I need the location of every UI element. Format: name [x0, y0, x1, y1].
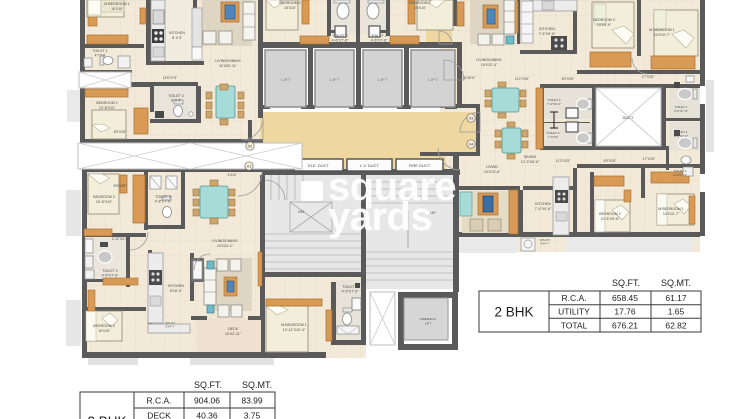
svg-text:2 BHK: 2 BHK	[494, 305, 533, 320]
svg-text:BEDROOM 3: BEDROOM 3	[93, 324, 115, 328]
svg-text:10'X13'-6": 10'X13'-6"	[484, 170, 501, 174]
svg-text:10'X10'-7": 10'X10'-7"	[663, 212, 680, 216]
svg-text:M.BEDROOM 1: M.BEDROOM 1	[104, 2, 130, 6]
svg-text:62.82: 62.82	[665, 320, 687, 330]
svg-text:10'X10': 10'X10'	[414, 6, 426, 10]
svg-text:BEDROOM 3: BEDROOM 3	[93, 195, 115, 199]
svg-text:676.21: 676.21	[612, 320, 638, 330]
svg-text:4'-6"X8'-6": 4'-6"X8'-6"	[461, 76, 476, 80]
svg-text:3.75: 3.75	[244, 411, 261, 419]
svg-text:ELE. DUCT: ELE. DUCT	[308, 163, 329, 168]
svg-text:11'3"X3'5": 11'3"X3'5"	[556, 159, 570, 163]
svg-text:10'X24'-1": 10'X24'-1"	[217, 244, 234, 248]
svg-text:10'X10': 10'X10'	[98, 329, 110, 333]
svg-text:17.76: 17.76	[614, 307, 636, 317]
svg-text:4'-6"X7'-6": 4'-6"X7'-6"	[673, 173, 687, 177]
svg-text:LIVING/DINING: LIVING/DINING	[476, 58, 502, 62]
svg-text:DECK: DECK	[228, 327, 239, 331]
svg-text:658.45: 658.45	[612, 293, 638, 303]
svg-text:BEDROOM 2: BEDROOM 2	[599, 212, 621, 216]
svg-text:10'-8"X10': 10'-8"X10'	[99, 106, 116, 110]
svg-text:TOILET 2: TOILET 2	[332, 34, 347, 38]
svg-text:10'X9'-9": 10'X9'-9"	[597, 23, 612, 27]
svg-text:8'X8'-6": 8'X8'-6"	[170, 289, 183, 293]
svg-text:3'X4'-7": 3'X4'-7"	[540, 242, 550, 246]
svg-text:8'5"X3'6": 8'5"X3'6"	[114, 130, 127, 134]
svg-text:DINING: DINING	[524, 155, 537, 159]
svg-text:4'-6"X7'-6": 4'-6"X7'-6"	[371, 39, 388, 43]
svg-text:8'9"X3'5": 8'9"X3'5"	[562, 77, 575, 81]
svg-text:904.06: 904.06	[194, 396, 220, 406]
svg-text:LIFT: LIFT	[428, 78, 438, 82]
svg-text:8'5"X3'6": 8'5"X3'6"	[114, 184, 127, 188]
svg-text:TOILET 2: TOILET 2	[102, 269, 117, 273]
svg-text:40.36: 40.36	[196, 411, 218, 419]
svg-text:TOILET 3: TOILET 3	[155, 195, 170, 199]
svg-text:4'-8"X7'-6": 4'-8"X7'-6"	[155, 200, 172, 204]
svg-text:LIFT: LIFT	[281, 78, 291, 82]
svg-text:7'-6"X9'-6": 7'-6"X9'-6"	[539, 32, 556, 36]
svg-text:10'X2'-11": 10'X2'-11"	[225, 332, 242, 336]
svg-text:4'X14': 4'X14'	[228, 173, 237, 177]
svg-text:TOILET 1: TOILET 1	[92, 49, 107, 53]
svg-text:KITCHEN: KITCHEN	[168, 284, 184, 288]
svg-text:01: 01	[247, 164, 252, 169]
svg-text:KITCHEN: KITCHEN	[535, 202, 551, 206]
svg-text:UTILITY: UTILITY	[558, 307, 590, 317]
svg-text:SQ.FT.: SQ.FT.	[194, 380, 222, 390]
svg-text:03: 03	[469, 116, 474, 121]
svg-text:8' X 4': 8' X 4'	[171, 99, 181, 103]
svg-text:10'X10'-7": 10'X10'-7"	[654, 33, 671, 37]
svg-text:3'X4'-7": 3'X4'-7"	[165, 325, 175, 329]
svg-text:M.BEDROOM 1: M.BEDROOM 1	[649, 28, 675, 32]
svg-text:yards: yards	[328, 195, 432, 239]
svg-text:SQ.MT.: SQ.MT.	[242, 380, 272, 390]
svg-text:LIFT: LIFT	[330, 78, 340, 82]
svg-text:TOILET 2: TOILET 2	[371, 34, 386, 38]
svg-text:R.C.A.: R.C.A.	[561, 293, 586, 303]
svg-text:10'X20'-11": 10'X20'-11"	[219, 64, 238, 68]
svg-text:12'5"X7'6": 12'5"X7'6"	[163, 76, 177, 80]
svg-text:BEDROOM 2: BEDROOM 2	[96, 101, 118, 105]
svg-text:7'-6"X4': 7'-6"X4'	[548, 135, 559, 139]
svg-text:BEDROOM 2: BEDROOM 2	[279, 1, 301, 5]
svg-text:BEDROOM 2: BEDROOM 2	[409, 1, 431, 5]
svg-text:12'-3"X8'-6": 12'-3"X8'-6"	[521, 160, 540, 164]
svg-text:M.BEDROOM 1: M.BEDROOM 1	[658, 207, 684, 211]
svg-text:04: 04	[469, 142, 474, 147]
svg-text:SQ.FT.: SQ.FT.	[612, 278, 640, 288]
svg-text:LIFT: LIFT	[378, 78, 388, 82]
svg-text:10'-11"X10'-4": 10'-11"X10'-4"	[283, 328, 306, 332]
svg-text:7'-4"X9'-6": 7'-4"X9'-6"	[535, 207, 552, 211]
svg-text:4'-6"X7'-6": 4'-6"X7'-6"	[674, 109, 688, 113]
svg-text:8'9"X3'5": 8'9"X3'5"	[604, 159, 617, 163]
svg-text:SQ.MT.: SQ.MT.	[661, 278, 691, 288]
svg-text:TOILET 1: TOILET 1	[342, 285, 357, 289]
svg-text:DN: DN	[298, 209, 304, 214]
svg-text:1.65: 1.65	[668, 307, 685, 317]
svg-text:2'-11"X4'-4": 2'-11"X4'-4"	[112, 237, 128, 241]
svg-text:4'-6"X7'-6": 4'-6"X7'-6"	[674, 134, 688, 138]
svg-text:LIVING/DINING: LIVING/DINING	[212, 239, 238, 243]
svg-text:8' X 9': 8' X 9'	[172, 36, 182, 40]
svg-text:10'X22'-4": 10'X22'-4"	[481, 63, 498, 67]
svg-text:7'-4"X4'-0": 7'-4"X4'-0"	[547, 102, 561, 106]
svg-text:10'-8"X9'-6": 10'-8"X9'-6"	[601, 217, 620, 221]
svg-text:TOILET 3: TOILET 3	[168, 94, 183, 98]
svg-text:11'2"X3'5": 11'2"X3'5"	[515, 77, 529, 81]
svg-text:LIVING: LIVING	[486, 165, 498, 169]
svg-text:R.C.A.: R.C.A.	[146, 396, 171, 406]
svg-text:LIVING/DINING: LIVING/DINING	[215, 59, 241, 63]
svg-text:10'-8"X10': 10'-8"X10'	[96, 200, 113, 204]
svg-text:TOTAL: TOTAL	[561, 320, 588, 330]
svg-text:4'-6"X7'-6": 4'-6"X7'-6"	[332, 39, 349, 43]
svg-text:KITCHEN: KITCHEN	[539, 27, 555, 31]
svg-text:1'7"X2'6": 1'7"X2'6"	[642, 75, 655, 79]
svg-text:DUCT: DUCT	[622, 115, 634, 120]
svg-text:4'7"X4': 4'7"X4'	[94, 54, 105, 58]
svg-text:10'X10': 10'X10'	[111, 7, 123, 11]
svg-text:2 BHK: 2 BHK	[87, 414, 126, 419]
svg-text:10'X10': 10'X10'	[284, 6, 296, 10]
svg-text:4'-9"X7'-6": 4'-9"X7'-6"	[342, 290, 359, 294]
svg-text:BEDROOM 3: BEDROOM 3	[593, 18, 615, 22]
svg-text:KITCHEN: KITCHEN	[169, 31, 185, 35]
svg-text:FIREMAN'S: FIREMAN'S	[420, 317, 436, 321]
svg-text:4'-6"X7'-6": 4'-6"X7'-6"	[102, 274, 119, 278]
svg-text:83.99: 83.99	[241, 396, 263, 406]
svg-text:1'7"X2'6": 1'7"X2'6"	[643, 157, 656, 161]
svg-text:DECK: DECK	[147, 411, 171, 419]
svg-text:LIFT: LIFT	[425, 322, 431, 326]
svg-text:02: 02	[248, 144, 253, 149]
svg-text:61.17: 61.17	[665, 293, 687, 303]
svg-text:M.BEDROOM 1: M.BEDROOM 1	[281, 323, 307, 327]
